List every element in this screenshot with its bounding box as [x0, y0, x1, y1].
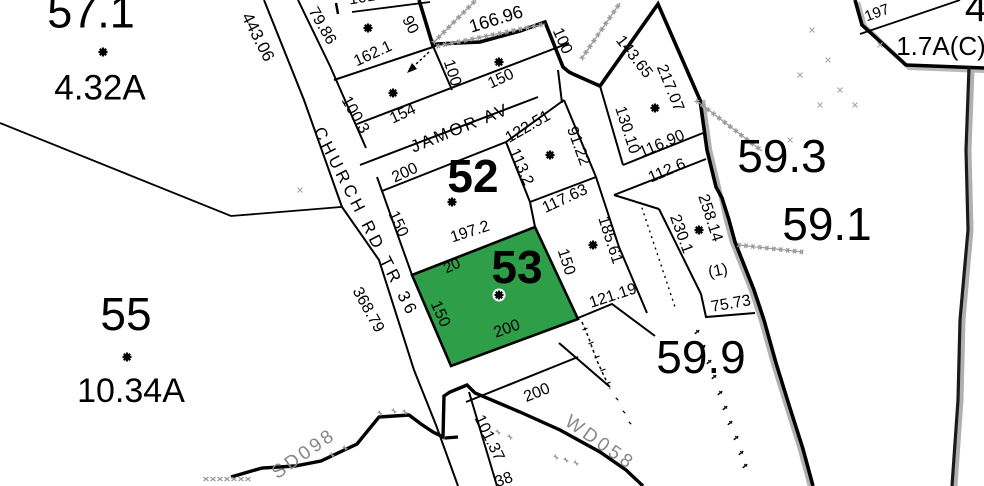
svg-text:10.34A: 10.34A: [77, 372, 185, 410]
svg-text:4.32A: 4.32A: [54, 69, 146, 108]
svg-text:55: 55: [100, 288, 151, 340]
svg-text:52: 52: [447, 150, 498, 202]
svg-text:4: 4: [965, 0, 984, 30]
svg-text:53: 53: [491, 241, 542, 293]
svg-text:59.3: 59.3: [737, 130, 827, 182]
svg-text:1.7A(C): 1.7A(C): [896, 31, 984, 61]
svg-text:59.9: 59.9: [656, 331, 746, 383]
svg-text:59.1: 59.1: [782, 198, 872, 250]
svg-text:57.1: 57.1: [47, 0, 135, 38]
